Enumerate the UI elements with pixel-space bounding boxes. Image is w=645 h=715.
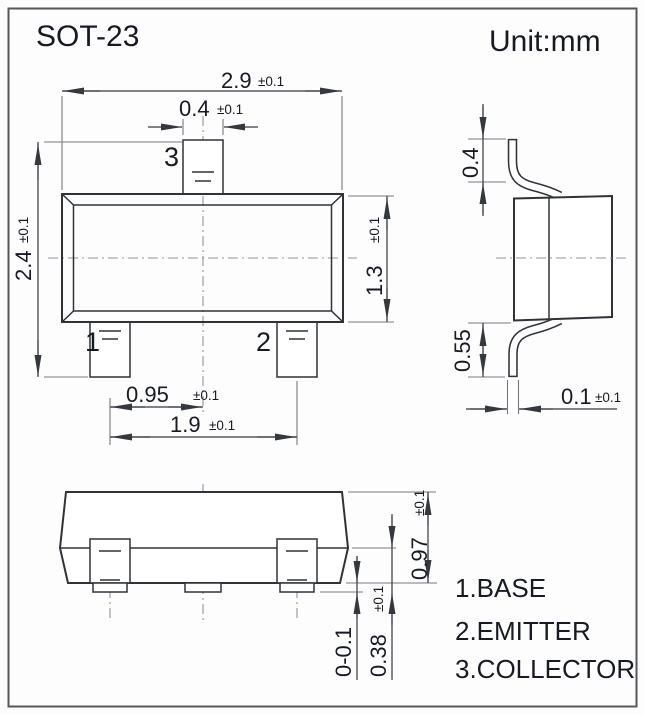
unit-label: Unit:mm (489, 25, 601, 58)
drawing-canvas: SOT-23 Unit:mm 1 2 3 2.9 (0, 0, 645, 715)
dim-lead-foot-height-value: 0.38 (366, 634, 391, 677)
sot23-outline-drawing: SOT-23 Unit:mm 1 2 3 2.9 (0, 0, 645, 715)
pin3-number: 3 (164, 142, 179, 172)
legend-base: 1.BASE (455, 573, 546, 603)
drawing-title: SOT-23 (36, 20, 139, 53)
dim-front-body-height-tol: ±0.1 (412, 490, 427, 516)
dim-standoff-value: 0-0.1 (331, 627, 356, 677)
dim-lead-top-height-value: 0.4 (458, 147, 483, 178)
dim-body-height-tol: ±0.1 (16, 217, 31, 243)
bevel-corner (62, 311, 74, 322)
dim-pin3-width: 0.4 ±0.1 (148, 96, 258, 135)
dim-lead-foot-height-tol: ±0.1 (371, 586, 386, 612)
front-view (60, 484, 348, 622)
dim-body-depth-tol: ±0.1 (367, 217, 382, 243)
front-pin2-lead (277, 539, 317, 583)
dim-body-depth: 1.3 ±0.1 (348, 196, 394, 322)
dim-body-width-value: 2.9 (221, 68, 252, 93)
dim-lead-thickness-tol: ±0.1 (595, 390, 621, 405)
front-pin1-lead (90, 539, 130, 583)
bevel-corner (332, 311, 344, 322)
pin3-lead (183, 140, 223, 194)
pin-legend: 1.BASE 2.EMITTER 3.COLLECTOR (455, 573, 635, 684)
top-view: 1 2 3 (48, 116, 357, 414)
dim-lead-bottom-height: 0.55 (450, 323, 511, 377)
pin1-number: 1 (85, 327, 100, 357)
dim-pin3-width-value: 0.4 (179, 96, 210, 121)
dim-pin-pitch-half-value: 0.95 (126, 382, 169, 407)
bevel-corner (332, 194, 344, 205)
dim-body-height-value: 2.4 (11, 250, 36, 281)
pin2-number: 2 (256, 327, 271, 357)
dim-front-body-height-value: 0.97 (407, 537, 432, 580)
dim-lead-thickness-value: 0.1 (561, 384, 592, 409)
dim-pin-pitch-value: 1.9 (170, 412, 201, 437)
front-pin2-foot (280, 583, 314, 592)
legend-emitter: 2.EMITTER (455, 616, 591, 646)
front-pin1-foot (93, 583, 127, 592)
dim-pin-pitch-tol: ±0.1 (209, 418, 235, 433)
dim-lead-top-height: 0.4 (458, 104, 506, 216)
legend-collector: 3.COLLECTOR (455, 654, 635, 684)
side-view (496, 139, 630, 377)
dim-pin-pitch-half: 0.95 ±0.1 (110, 382, 219, 445)
dim-pin3-width-tol: ±0.1 (217, 102, 243, 117)
bevel-corner (62, 194, 74, 205)
dim-lead-thickness: 0.1 ±0.1 (466, 380, 621, 414)
dim-lead-bottom-height-value: 0.55 (450, 329, 475, 372)
dim-pin-pitch-half-tol: ±0.1 (193, 388, 219, 403)
dim-body-depth-value: 1.3 (362, 265, 387, 296)
front-pin3-foot (185, 583, 221, 592)
dim-body-width-tol: ±0.1 (258, 74, 284, 89)
